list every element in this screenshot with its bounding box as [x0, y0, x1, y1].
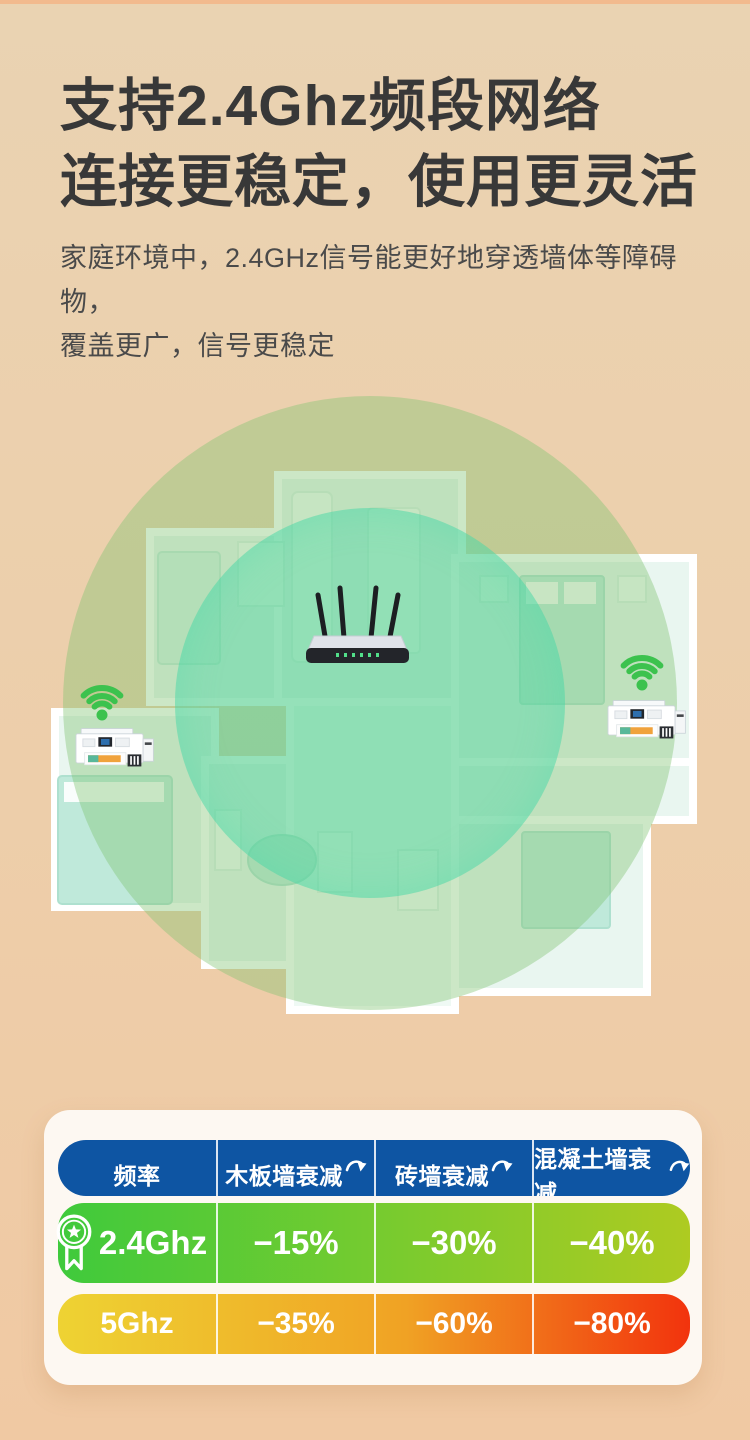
header-cell-concrete-wall: 混凝土墙衰减 — [532, 1140, 690, 1196]
header-label: 混凝土墙衰减 — [534, 1140, 667, 1196]
value-cell: −35% — [216, 1294, 374, 1354]
page-subtitle: 家庭环境中，2.4GHz信号能更好地穿透墙体等障碍物， 覆盖更广，信号更稳定 — [60, 236, 700, 368]
header-cell-wood-wall: 木板墙衰减 — [216, 1140, 374, 1196]
value-cell: −60% — [374, 1294, 532, 1354]
coverage-illustration — [0, 380, 750, 1040]
table-row-2_4ghz: 2.4Ghz −15% −30% −40% — [58, 1203, 690, 1283]
value-cell: −30% — [374, 1203, 532, 1283]
down-arrow-icon — [491, 1157, 513, 1175]
table-header-row: 频率 木板墙衰减 砖墙衰减 混凝土墙衰减 — [58, 1140, 690, 1196]
value-cell: −40% — [532, 1203, 690, 1283]
printer-left — [76, 729, 153, 767]
medal-icon — [53, 1212, 95, 1274]
frequency-label: 5Ghz — [100, 1307, 173, 1341]
header-label: 频率 — [114, 1157, 161, 1191]
down-arrow-icon — [345, 1157, 367, 1175]
printer-right — [608, 701, 685, 739]
value-cell: −80% — [532, 1294, 690, 1354]
header-cell-brick-wall: 砖墙衰减 — [374, 1140, 532, 1196]
attenuation-table-card: 频率 木板墙衰减 砖墙衰减 混凝土墙衰减 — [44, 1110, 702, 1385]
title-line-2: 连接更稳定，使用更灵活 — [60, 144, 700, 220]
down-arrow-icon — [669, 1157, 690, 1175]
wifi-signal-icon-left — [84, 688, 121, 721]
top-divider — [0, 0, 750, 4]
frequency-cell: 5Ghz — [58, 1294, 216, 1354]
header-cell-frequency: 频率 — [58, 1140, 216, 1196]
frequency-cell: 2.4Ghz — [58, 1203, 216, 1283]
value-cell: −15% — [216, 1203, 374, 1283]
router-device — [306, 588, 409, 663]
hero-header: 支持2.4Ghz频段网络 连接更稳定，使用更灵活 家庭环境中，2.4GHz信号能… — [60, 68, 700, 368]
subtitle-line-1: 家庭环境中，2.4GHz信号能更好地穿透墙体等障碍物， — [60, 236, 700, 324]
header-label: 砖墙衰减 — [395, 1157, 489, 1191]
title-line-1: 支持2.4Ghz频段网络 — [60, 68, 700, 144]
page-title: 支持2.4Ghz频段网络 连接更稳定，使用更灵活 — [60, 68, 700, 220]
header-label: 木板墙衰减 — [225, 1157, 343, 1191]
table-row-5ghz: 5Ghz −35% −60% −80% — [58, 1294, 690, 1354]
promo-page: 支持2.4Ghz频段网络 连接更稳定，使用更灵活 家庭环境中，2.4GHz信号能… — [0, 0, 750, 1440]
subtitle-line-2: 覆盖更广，信号更稳定 — [60, 324, 700, 368]
devices-layer — [0, 380, 750, 1040]
frequency-label: 2.4Ghz — [99, 1224, 207, 1262]
wifi-signal-icon-right — [624, 658, 661, 691]
